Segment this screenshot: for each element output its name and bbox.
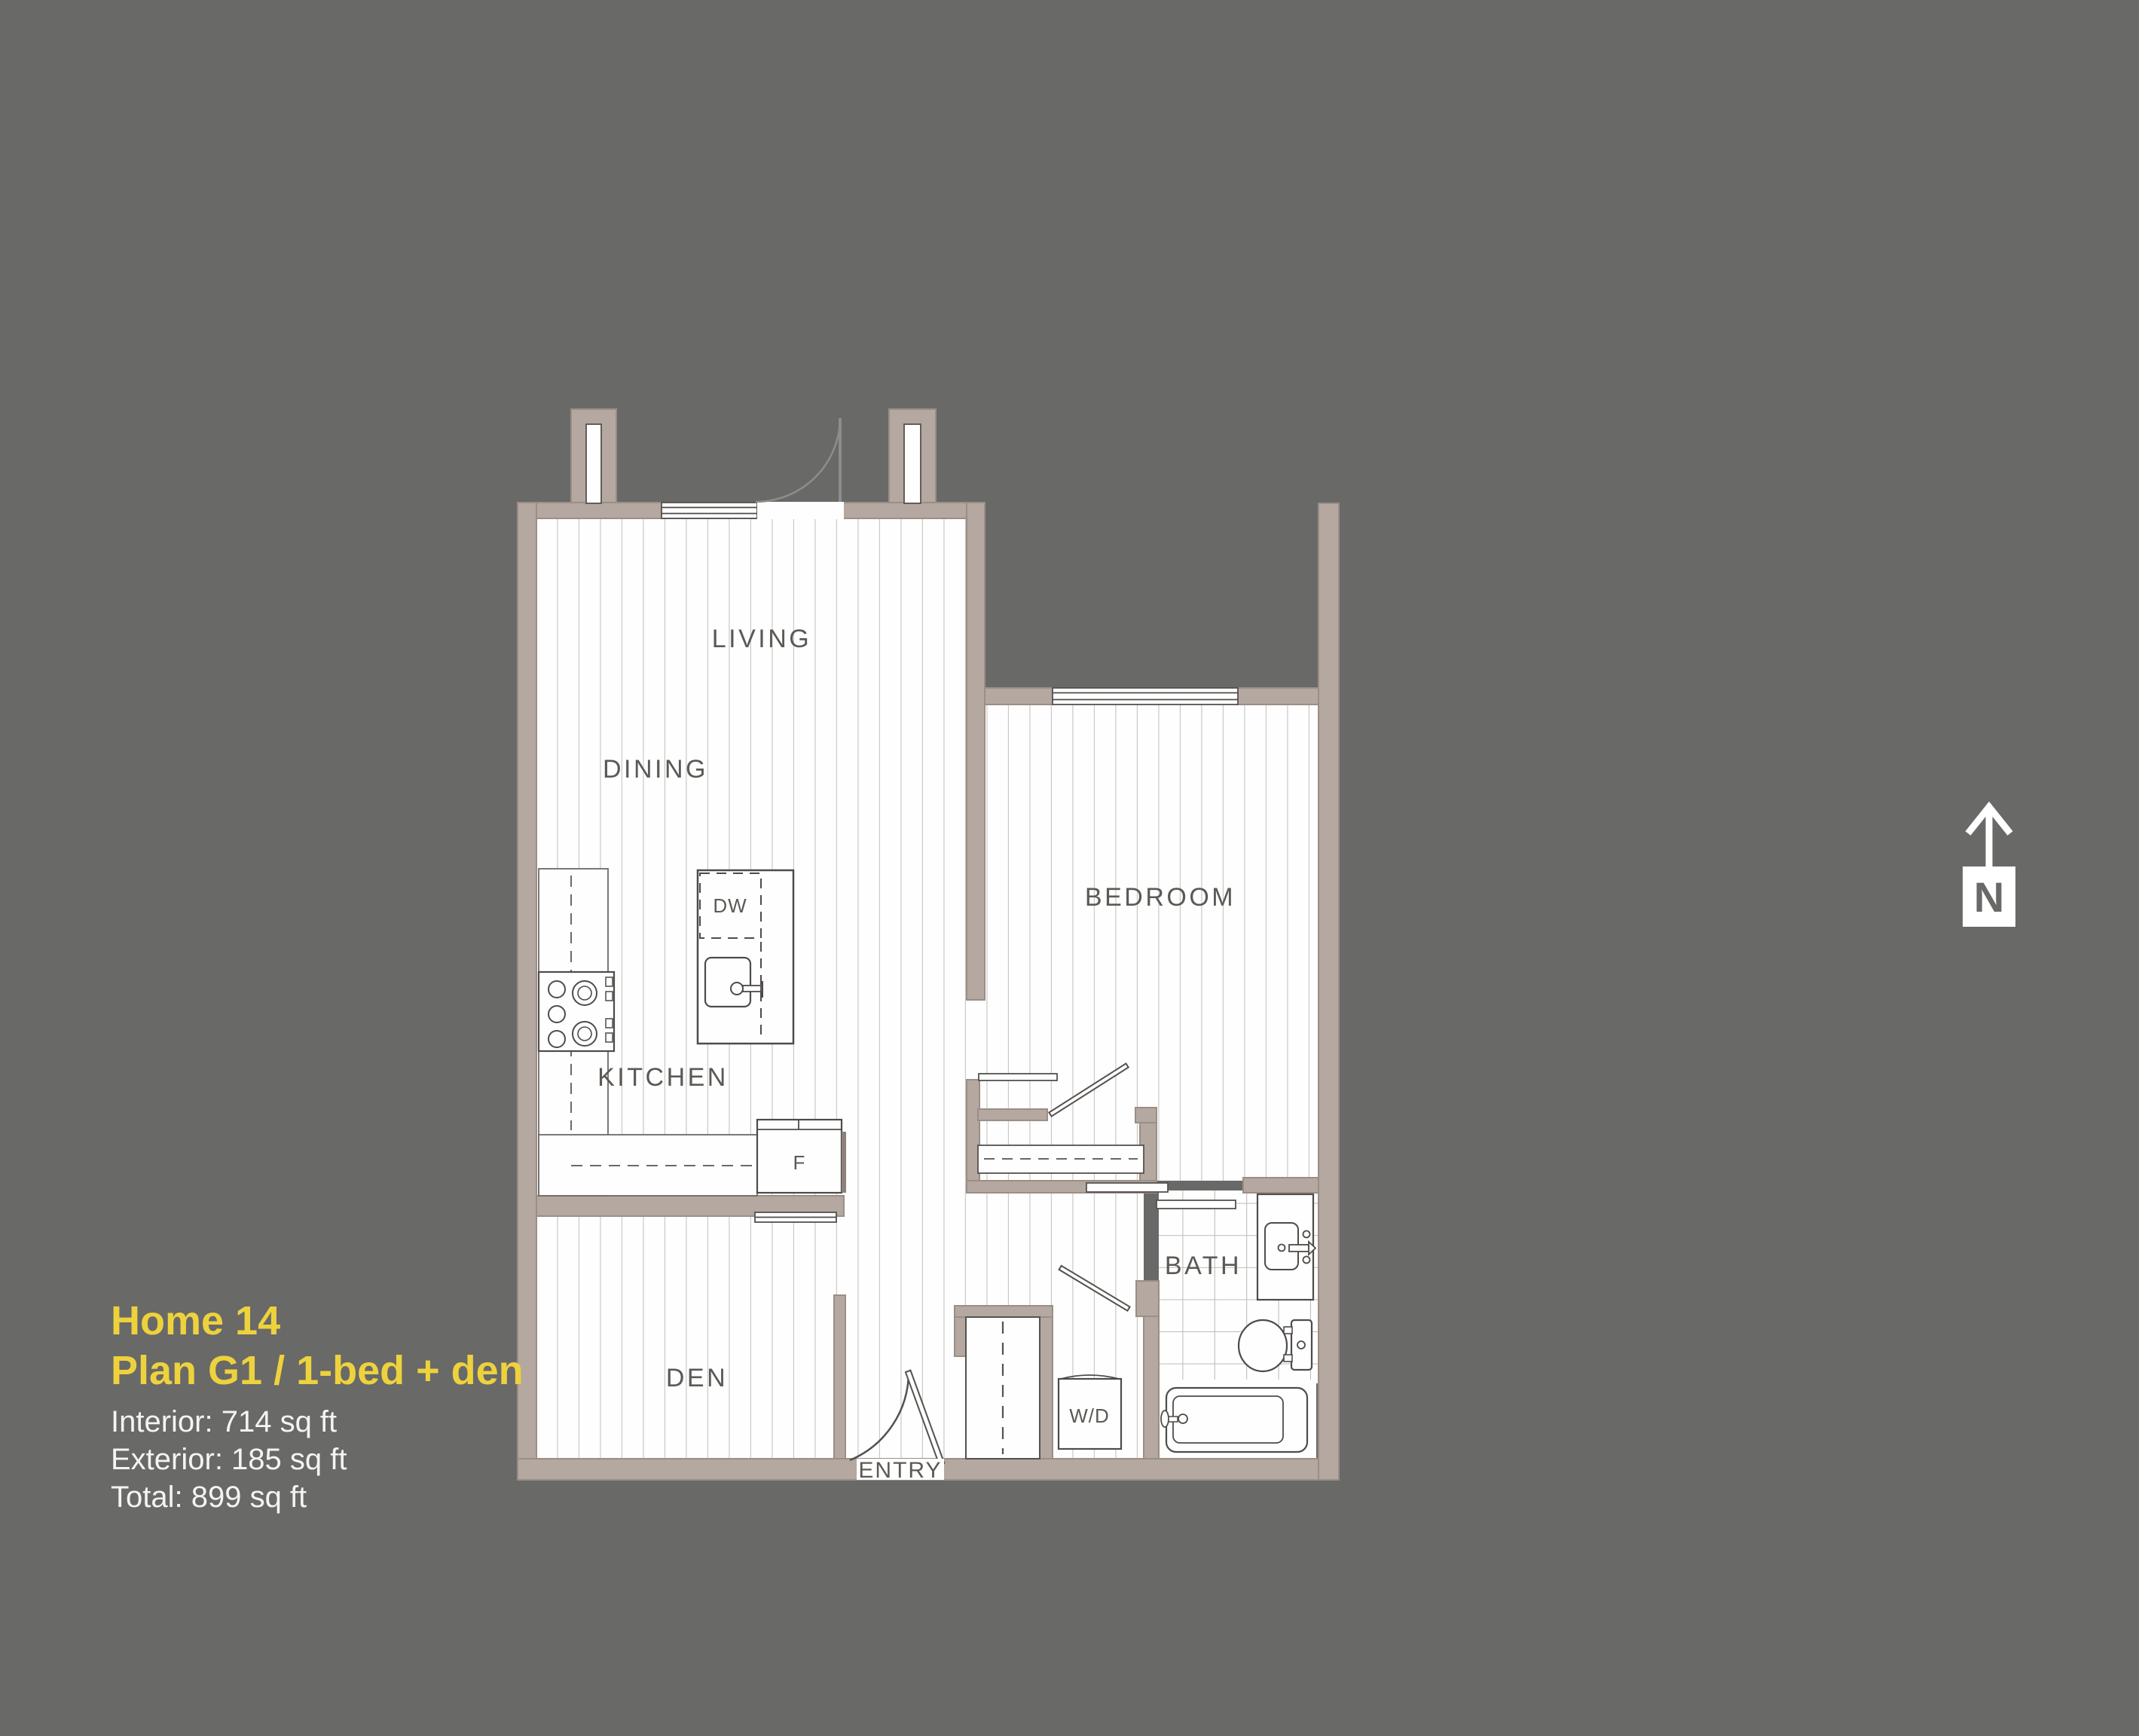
tub-faucet-spout [1178,1414,1187,1423]
appliance-label-wd: W/D [1069,1404,1110,1427]
window-bedroom [1053,688,1238,704]
tub-faucet-knob [1161,1410,1169,1427]
room-label-dining: DINING [603,755,708,784]
floor-bedroom-doorway [967,1000,979,1080]
toilet-hinge [1284,1327,1292,1334]
room-label-living: LIVING [712,625,811,653]
north-compass: N [1963,807,2015,927]
stove [539,972,614,1051]
plan-name: Plan G1 / 1-bed + den [111,1348,524,1393]
toilet-bowl [1239,1320,1287,1371]
sink-faucet-base [731,983,743,995]
fridge-side-panel [842,1132,846,1193]
home-name: Home 14 [111,1298,280,1343]
wall-bedroom-top-right [1238,688,1322,704]
room-label-entry: ENTRY [858,1458,942,1483]
wall-entry-closet-right [1040,1317,1053,1459]
toilet [1239,1320,1312,1371]
wall-living-bedroom-divider [967,503,985,1000]
wall-bath-top [1243,1178,1319,1193]
toilet-tank [1291,1320,1312,1370]
wall-closet-arm [978,1109,1047,1120]
wall-bedroom-top-left [985,688,1053,704]
floorplan-page: LIVING DINING KITCHEN BEDROOM DEN BATH E… [0,0,2139,1736]
wall-wd-right-cap [1136,1281,1159,1316]
closet-rod-cabinet [978,1145,1144,1173]
total-area: Total: 899 sq ft [111,1481,307,1514]
balcony-door-opening [757,502,844,519]
room-label-kitchen: KITCHEN [597,1063,729,1092]
tub-faucet-stem [1169,1417,1178,1422]
room-label-bedroom: BEDROOM [1085,883,1236,912]
wall-wd-right [1144,1316,1159,1459]
bath-sliding-door-panel-1 [1086,1183,1168,1192]
bath-vanity [1257,1194,1315,1300]
exterior-area: Exterior: 185 sq ft [111,1443,347,1476]
room-label-bath: BATH [1165,1252,1242,1280]
interior-area: Interior: 714 sq ft [111,1405,337,1438]
wall-entry-closet-top [955,1306,1053,1317]
vanity-faucet [1289,1245,1309,1252]
floorplan-canvas: LIVING DINING KITCHEN BEDROOM DEN BATH E… [0,0,2139,1736]
window-stub-left [586,424,601,503]
entry-closet [966,1317,1040,1459]
wall-bedroom-left-lower [967,1080,979,1193]
bath-sliding-door-panel-2 [1157,1200,1236,1209]
wall-left [518,503,536,1480]
bathtub [1161,1388,1307,1452]
wall-right [1319,503,1339,1480]
wall-entry-closet-left [955,1317,966,1356]
wall-closet-right-cap [1135,1108,1157,1123]
appliance-label-dw: DW [713,894,747,917]
wall-den-hall-partition [834,1295,845,1459]
toilet-hinge [1284,1355,1292,1362]
closet-shelf [979,1074,1057,1080]
den-shelf [755,1212,836,1222]
window-stub-right [904,424,921,503]
sink-faucet-spout [743,986,761,992]
room-label-den: DEN [666,1364,728,1392]
north-label: N [1974,873,2004,921]
window-living-top [662,503,757,518]
appliance-label-f: F [793,1151,806,1174]
